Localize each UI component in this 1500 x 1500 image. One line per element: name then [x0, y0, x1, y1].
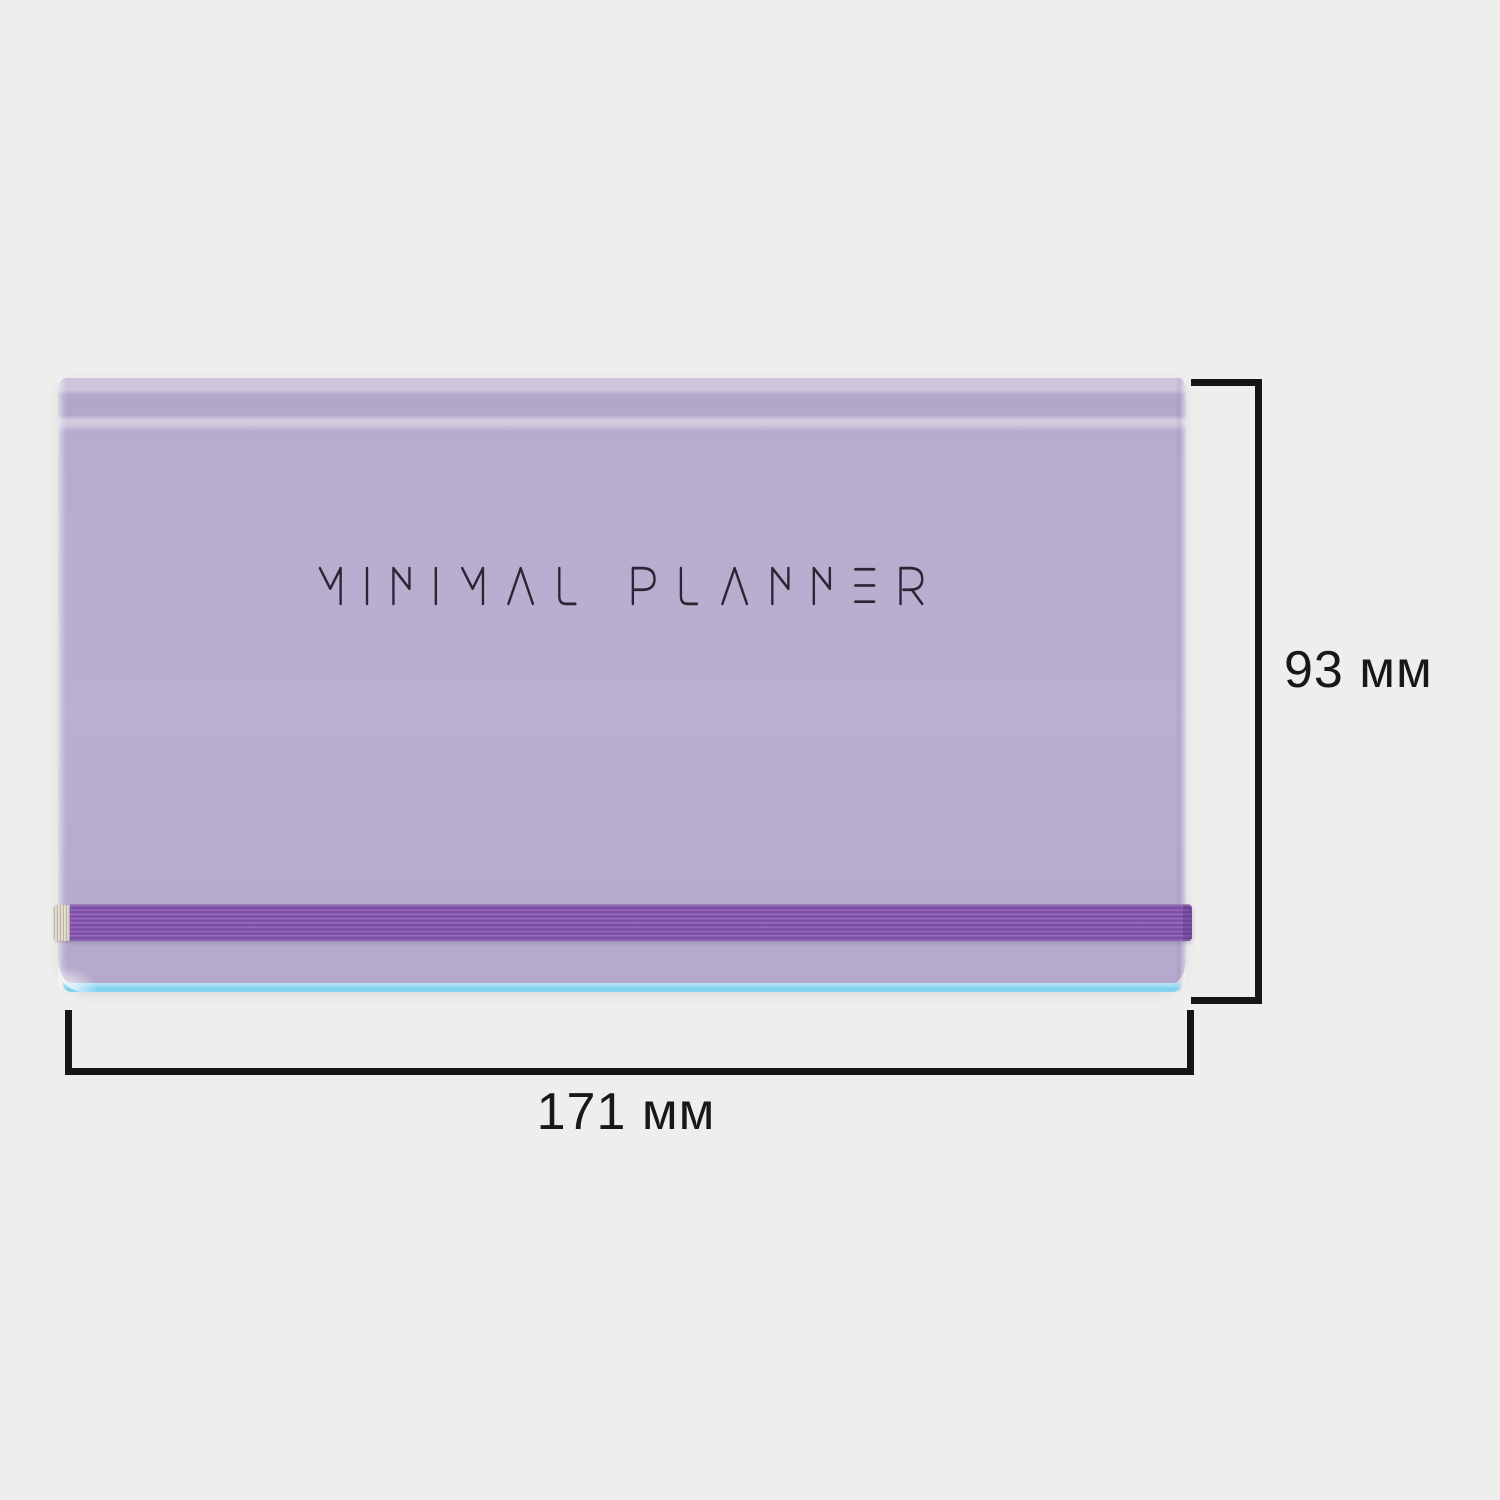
cover-title-graphic [318, 566, 926, 606]
planner-cover: MINIMAL PLANNER [58, 378, 1186, 992]
planner-left-edge-highlight [58, 378, 67, 992]
width-dimension-bracket [65, 1010, 1194, 1075]
cover-title: MINIMAL PLANNER [318, 566, 926, 606]
planner-page-edge-blue [63, 983, 1181, 992]
elastic-clasp [54, 905, 71, 941]
height-dimension-label: 93 мм [1284, 642, 1433, 699]
planner-top-flap-bands [58, 378, 1186, 433]
width-dimension-label: 171 мм [65, 1084, 1187, 1141]
elastic-band [70, 905, 1192, 941]
height-dimension-bracket [1191, 379, 1262, 1004]
planner-right-edge-highlight [1176, 378, 1186, 992]
